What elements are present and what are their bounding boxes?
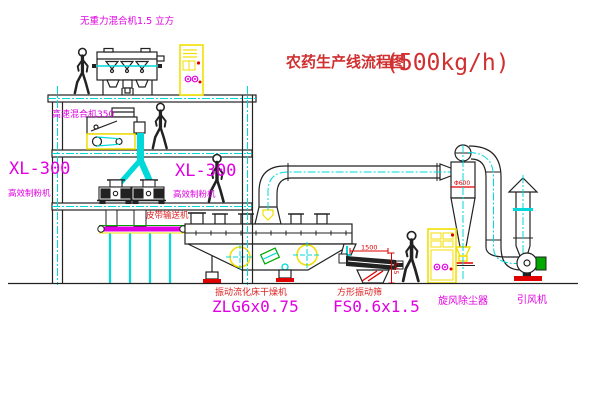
label-mill-right-name: 高效制粉机	[173, 189, 216, 200]
fluid-bed-dryer-drawing	[185, 207, 356, 283]
person-figure	[403, 232, 418, 281]
label-gravity-mixer: 无重力混合机1.5 立方	[80, 15, 174, 27]
control-cabinet-2	[428, 229, 456, 283]
label-belt-conveyor: 皮带输送机	[146, 210, 189, 221]
belt-conveyor-drawing	[98, 226, 186, 284]
person-figure	[153, 103, 167, 148]
mill-left-drawing	[97, 180, 133, 204]
gravity-free-mixer-drawing	[92, 49, 164, 96]
label-high-speed-mixer: 高速混合机350	[52, 108, 114, 120]
mill-chutes	[106, 210, 146, 226]
dim-screen-side: 545	[392, 262, 400, 274]
dim-screen-length: 1500	[361, 244, 378, 252]
label-mill-left-name: 高效制粉机	[8, 188, 51, 199]
exhaust-duct-drawing	[259, 163, 452, 210]
process-flow-drawing: 农药生产线流程图 (500kg/h) 无重力混合机1.5 立方 高速混合机350…	[0, 0, 600, 403]
label-cyclone: 旋风除尘器	[438, 294, 488, 307]
page-title-capacity: (500kg/h)	[385, 50, 510, 76]
label-dryer-model: ZLG6x0.75	[212, 297, 299, 316]
induced-draft-fan-drawing	[514, 253, 546, 281]
mill-right-drawing	[130, 180, 166, 204]
label-mill-right-model: XL-300	[175, 161, 236, 181]
label-screen-model: FS0.6x1.5	[333, 297, 420, 316]
dim-cyclone: Φ600	[454, 180, 470, 187]
cad-diagram: 农药生产线流程图 (500kg/h) 无重力混合机1.5 立方 高速混合机350…	[0, 0, 600, 403]
person-figure	[75, 48, 89, 93]
control-cabinet-1	[180, 45, 203, 95]
label-mill-left-model: XL-300	[9, 159, 70, 179]
label-fan: 引风机	[517, 293, 547, 306]
